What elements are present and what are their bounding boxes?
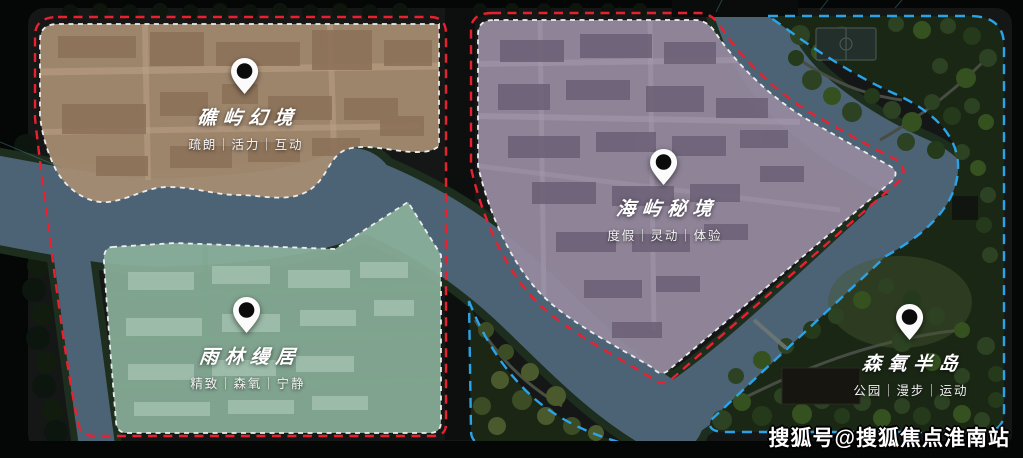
park-structure xyxy=(952,196,978,220)
zone-tags: 公园｜漫步｜运动 xyxy=(853,380,968,399)
location-pin-icon xyxy=(895,303,925,341)
zone-label-reef: 礁屿幻境 疏朗｜活力｜互动 xyxy=(187,57,304,153)
location-pin-icon xyxy=(649,148,679,186)
zone-title: 森氧半岛 xyxy=(861,349,966,376)
zone-tags: 疏朗｜活力｜互动 xyxy=(188,134,303,153)
north-road-band xyxy=(672,0,798,17)
zone-tags: 精致｜森氧｜宁静 xyxy=(190,373,305,392)
zone-tags: 度假｜灵动｜体验 xyxy=(607,225,722,244)
site-map: 礁屿幻境 疏朗｜活力｜互动 海屿秘境 度假｜灵动｜体验 雨林缦居 精致｜森氧｜宁… xyxy=(0,0,1023,458)
watermark: 搜狐号@搜狐焦点淮南站 xyxy=(769,422,1010,452)
park-pavilion xyxy=(782,368,860,404)
basketball-court xyxy=(816,28,876,60)
zone-label-rainforest: 雨林缦居 精致｜森氧｜宁静 xyxy=(189,296,306,392)
location-pin-icon xyxy=(230,57,260,95)
zone-title: 礁屿幻境 xyxy=(196,103,301,130)
zone-label-peninsula: 森氧半岛 公园｜漫步｜运动 xyxy=(852,303,969,399)
zone-title: 雨林缦居 xyxy=(198,342,303,369)
zone-title: 海屿秘境 xyxy=(615,194,720,221)
zone-label-island: 海屿秘境 度假｜灵动｜体验 xyxy=(606,148,723,244)
location-pin-icon xyxy=(232,296,262,334)
